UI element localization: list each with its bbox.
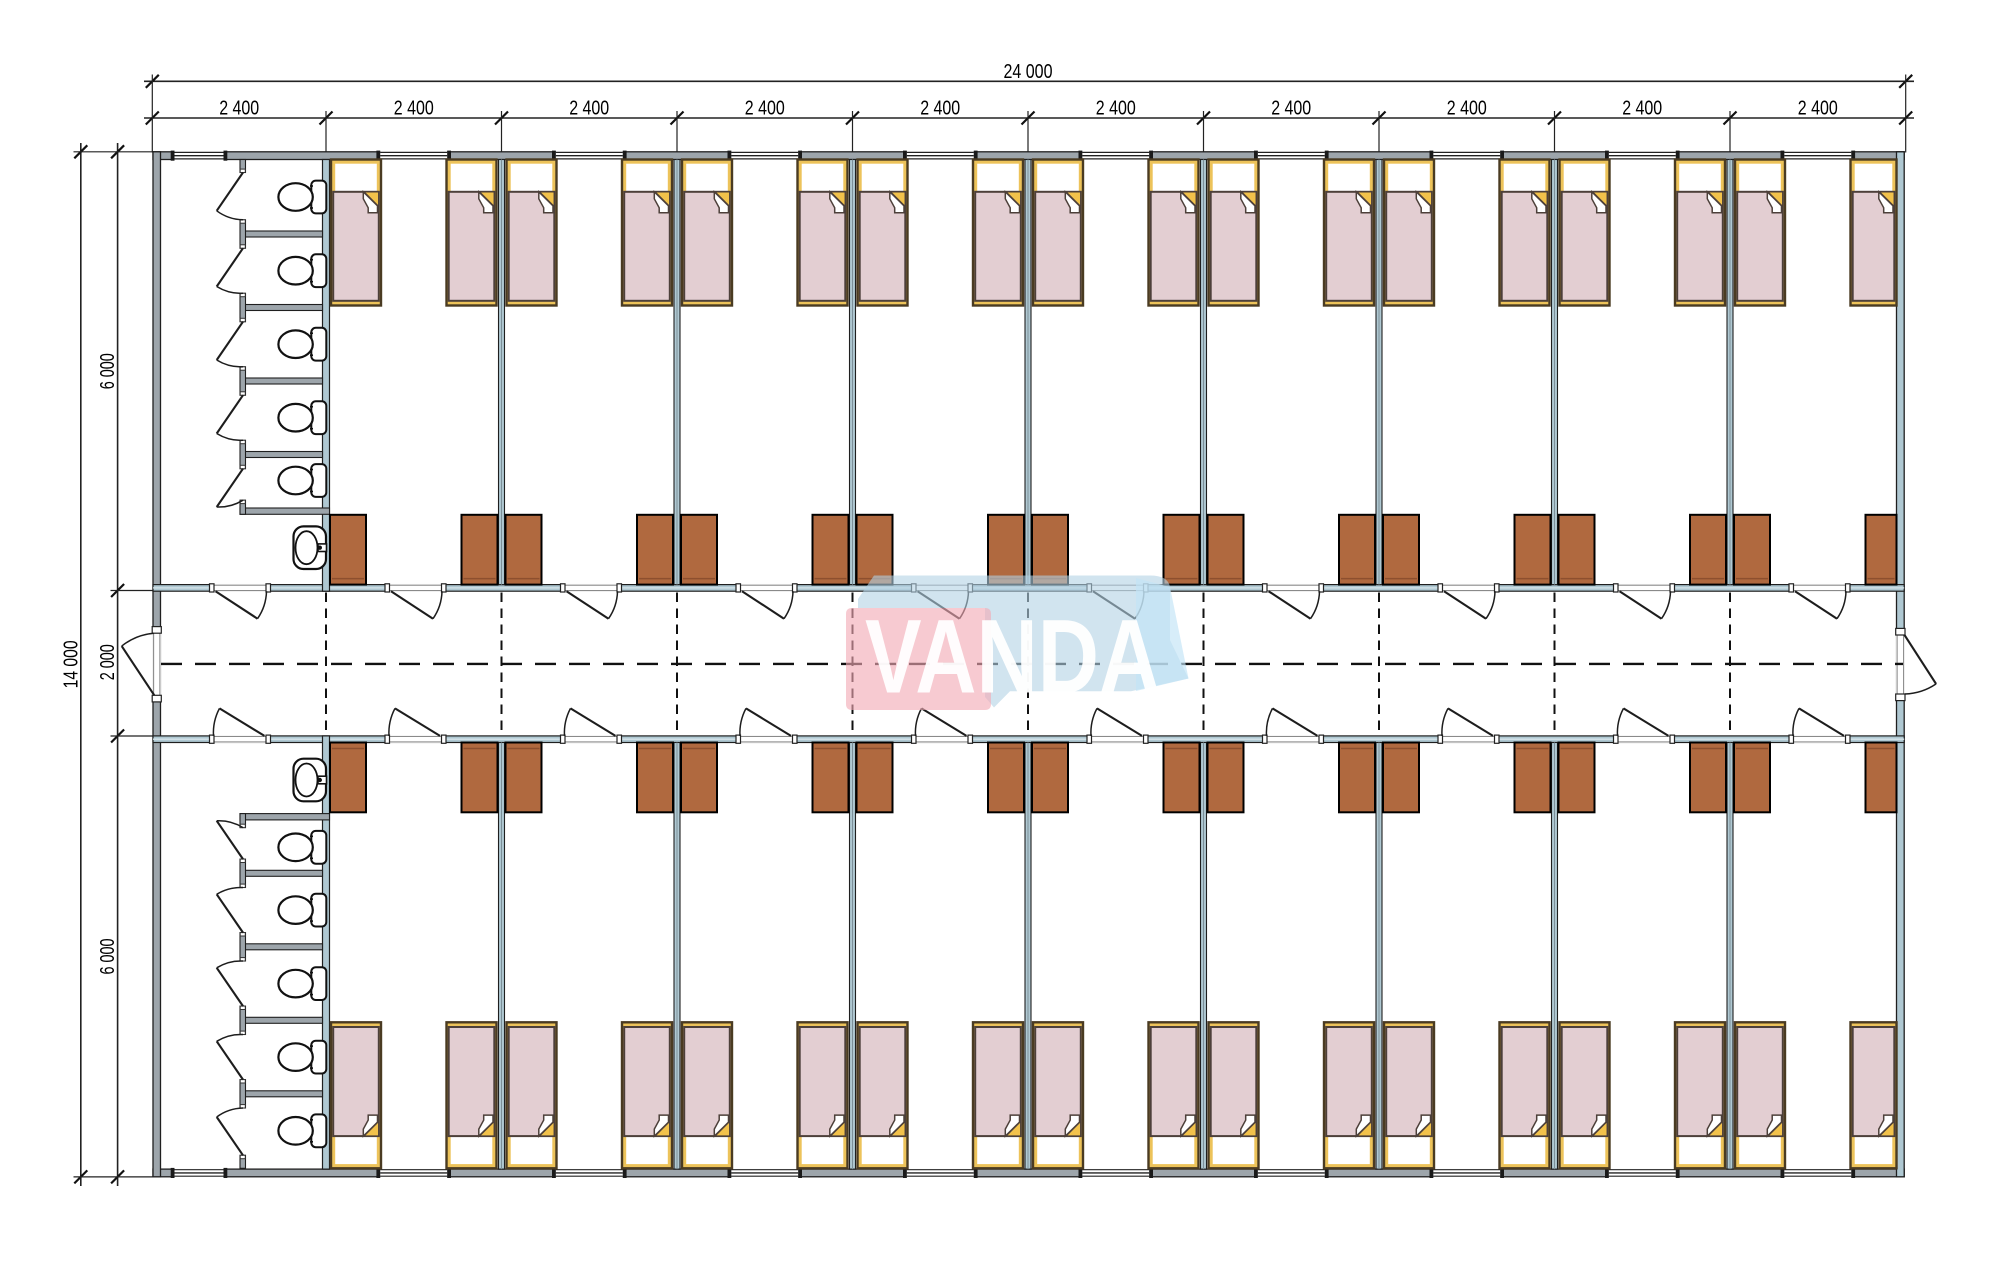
- svg-text:2 400: 2 400: [569, 98, 609, 120]
- svg-text:2 400: 2 400: [1447, 98, 1487, 120]
- svg-text:2 400: 2 400: [745, 98, 785, 120]
- svg-text:VANDA: VANDA: [865, 599, 1160, 716]
- svg-text:2 000: 2 000: [97, 644, 119, 680]
- svg-text:6 000: 6 000: [97, 353, 119, 389]
- svg-text:2 400: 2 400: [394, 98, 434, 120]
- svg-text:2 400: 2 400: [1622, 98, 1662, 120]
- svg-text:2 400: 2 400: [920, 98, 960, 120]
- svg-text:2 400: 2 400: [1798, 98, 1838, 120]
- svg-text:14 000: 14 000: [61, 640, 83, 688]
- svg-text:24 000: 24 000: [1004, 61, 1053, 83]
- svg-text:2 400: 2 400: [1096, 98, 1136, 120]
- svg-text:2 400: 2 400: [219, 98, 259, 120]
- svg-text:2 400: 2 400: [1271, 98, 1311, 120]
- svg-text:6 000: 6 000: [97, 939, 119, 975]
